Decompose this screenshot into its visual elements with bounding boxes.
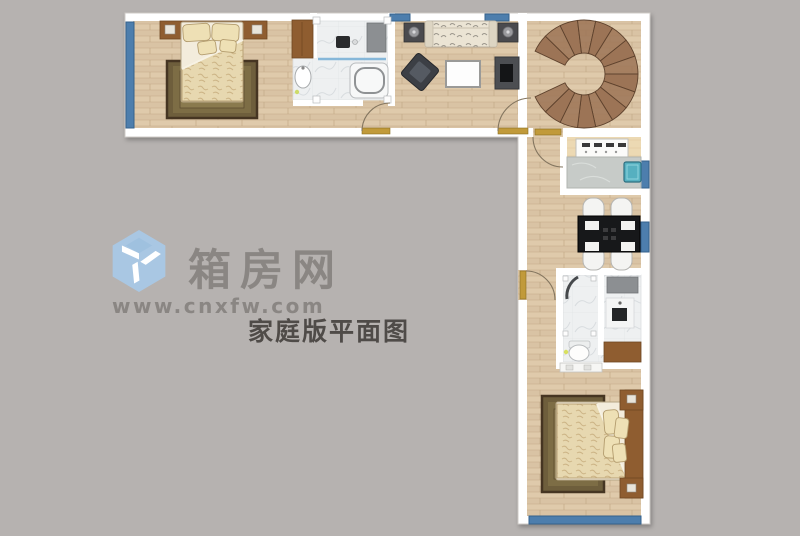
tv — [500, 64, 513, 82]
placemat — [621, 242, 635, 251]
window-bedroom1 — [126, 22, 134, 128]
bedroom-2 — [542, 390, 643, 498]
door-leaf-bathroom1 — [362, 128, 390, 134]
sofa — [425, 21, 497, 47]
fixture — [612, 308, 627, 321]
nightstand-left — [165, 25, 175, 34]
toilet — [336, 36, 350, 48]
nightstand-right — [252, 25, 262, 34]
placemat — [585, 221, 599, 230]
cube-logo-icon — [108, 228, 170, 294]
shower-mat — [367, 23, 386, 52]
site-name: 箱房网 — [188, 236, 344, 298]
window-kitchen — [641, 161, 649, 188]
window-dining — [641, 222, 649, 252]
door-leaf-entry — [520, 271, 526, 299]
wardrobe — [292, 20, 313, 58]
soap-dish — [295, 90, 299, 94]
placemat — [585, 242, 599, 251]
stove — [576, 139, 628, 157]
shower-head-panel — [607, 277, 638, 293]
watermark: 箱房网 www.cnxfw.com 家庭版平面图 — [106, 228, 466, 348]
door-leaf-living — [498, 128, 528, 134]
window-living-2 — [485, 14, 509, 21]
door-leaf-corridor — [535, 129, 561, 135]
window-living-1 — [390, 14, 410, 21]
toilet — [569, 345, 589, 361]
plan-caption: 家庭版平面图 — [248, 312, 410, 348]
coffee-table — [446, 61, 480, 87]
vanity-cabinet — [604, 342, 641, 362]
placemat — [621, 221, 635, 230]
screenshot: 箱房网 www.cnxfw.com 家庭版平面图 — [0, 0, 800, 536]
window-bedroom2 — [529, 516, 641, 524]
